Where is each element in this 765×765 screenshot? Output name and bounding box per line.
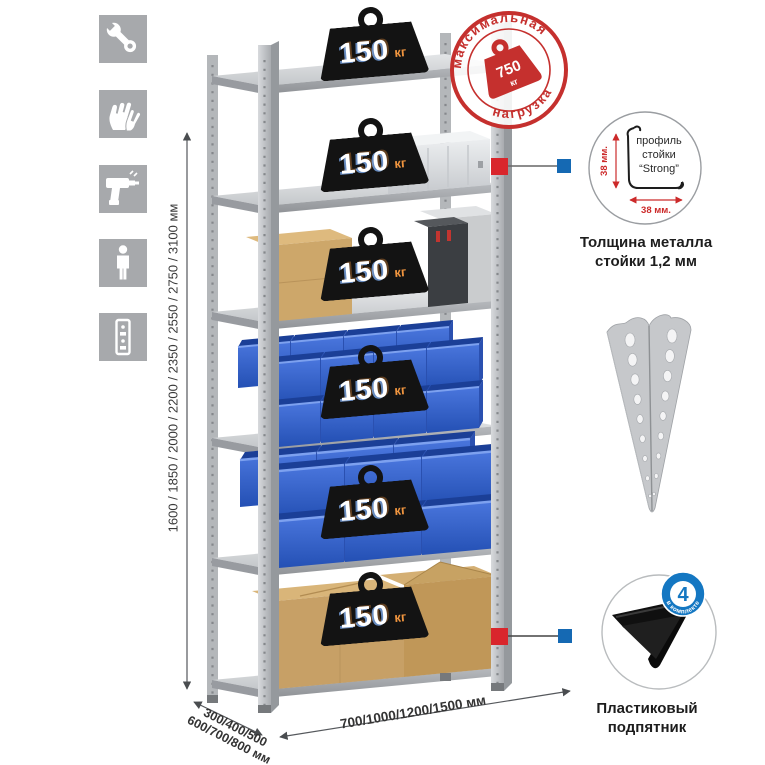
marker-blue-square [557,159,571,173]
front-left-post [258,41,279,713]
person-icon [99,239,147,287]
gloves-glyph [99,90,147,138]
infographic-canvas: 150кг 150кг 150кг 150кг 150кг 150кг макс… [0,0,765,765]
plastic-foot-detail: 4 в комплекте [596,569,722,695]
shelf-load-value: 150 [338,145,390,181]
upright-profile-photo [607,315,691,512]
drill-glyph [99,165,147,213]
wrench-glyph [99,15,147,63]
qty-badge: 4 в комплекте [661,572,705,616]
shelf-load-badge: 150кг [314,113,430,192]
shelf-load-unit: кг [394,609,407,625]
shelf-load-badge: 150кг [314,567,430,646]
gloves-icon [99,90,147,138]
foot-caption-line2: подпятник [562,719,732,738]
shelf-load-value: 150 [338,34,390,70]
profile-title-line1: профиль [636,135,682,147]
drill-icon [99,165,147,213]
profile-caption-line2: стойки 1,2 мм [561,253,731,272]
shelf-load-value: 150 [338,372,390,408]
height-dimension-label: 1600 / 1850 / 2000 / 2200 / 2350 / 2550 … [166,204,181,533]
shelf-load-value: 150 [338,254,390,290]
shelf-load-unit: кг [394,155,407,171]
shelf-load-badge: 150кг [314,222,430,301]
person-glyph [99,239,147,287]
wrench-icon [99,15,147,63]
profile-caption-line1: Толщина металла [561,234,731,253]
profile-caption: Толщина металла стойки 1,2 мм [561,234,731,272]
profile-title-line2: стойки [642,149,676,161]
foot-caption: Пластиковый подпятник [562,700,732,738]
rack-post-glyph [99,313,147,361]
shelf-load-value: 150 [338,599,390,635]
marker-blue-square [558,629,572,643]
shelf-load-badge: 150кг [314,460,430,539]
post-profile-detail: 38 мм. 38 мм. профиль стойки “Strong” [583,110,713,234]
shelf-load-value: 150 [338,492,390,528]
rack-post-icon [99,313,147,361]
profile-title-line3: “Strong” [639,163,679,175]
shelf-load-unit: кг [394,44,407,60]
shelf-load-unit: кг [394,264,407,280]
shelf-load-unit: кг [394,382,407,398]
qty-badge-value: 4 [677,584,689,606]
marker-red-square [491,628,508,645]
marker-red-square [491,158,508,175]
foot-caption-line1: Пластиковый [562,700,732,719]
shelf-load-badge: 150кг [314,340,430,419]
profile-dim-h-label: 38 мм. [641,205,671,216]
shelf-load-unit: кг [394,502,407,518]
profile-dim-v-label: 38 мм. [599,146,610,176]
max-load-stamp: максимальная нагрузка 750 кг [445,6,573,134]
shelf-load-badge: 150кг [314,2,430,81]
